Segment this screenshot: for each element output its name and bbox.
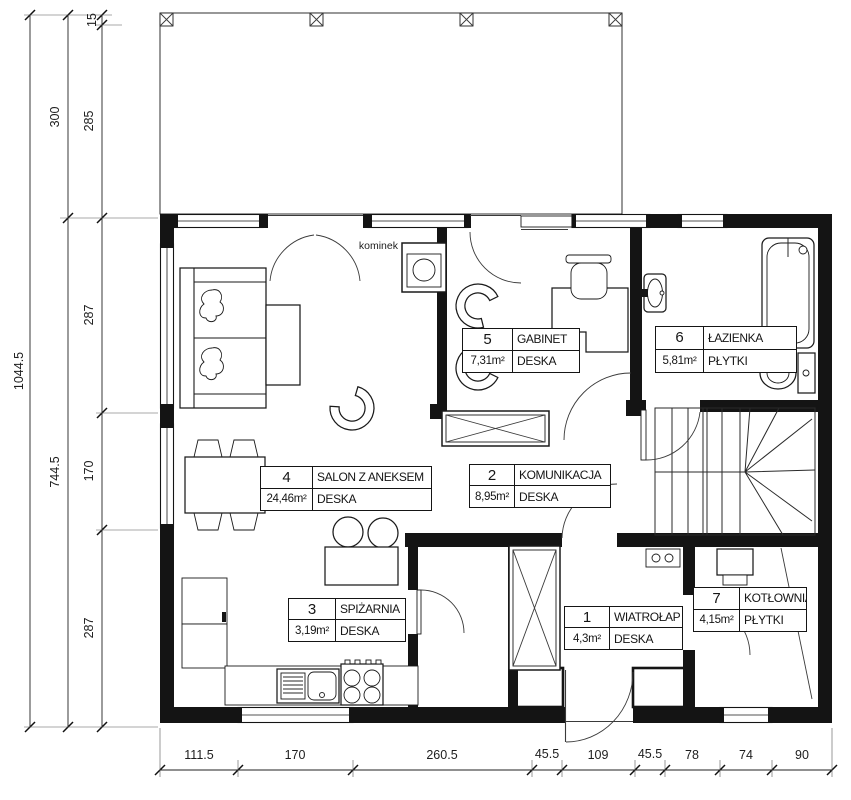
room-label-spizarnia: 3 SPIŻARNIA 3,19m² DESKA	[288, 598, 406, 642]
room-number: 1	[565, 607, 610, 628]
meter-box	[646, 549, 680, 567]
room-label-komunikacja: 2 KOMUNIKACJA 8,95m² DESKA	[469, 464, 611, 508]
dimension-label: 109	[588, 748, 609, 762]
gabinet-door	[564, 373, 631, 440]
washbasin	[640, 274, 666, 312]
room-area: 4,3m²	[565, 628, 610, 649]
window-kotlownia	[720, 708, 772, 723]
kitchen-island	[325, 547, 398, 585]
dining-chair	[194, 440, 222, 457]
armchair	[326, 384, 383, 439]
room-number: 2	[470, 465, 515, 486]
fridge	[182, 578, 227, 624]
kitchen-cabinet	[182, 624, 227, 668]
room-area: 24,46m²	[261, 489, 313, 511]
dimension-label: 287	[82, 618, 96, 639]
stove	[341, 660, 383, 705]
room-name: KOMUNIKACJA	[515, 465, 610, 486]
dimension-label: 285	[82, 111, 96, 132]
room-number: 3	[289, 599, 336, 620]
dining-chair	[230, 513, 258, 530]
dining-chair	[194, 513, 222, 530]
dimension-label: 90	[795, 748, 809, 762]
entry-pier	[633, 668, 691, 707]
room-number: 7	[694, 588, 740, 610]
room-area: 8,95m²	[470, 486, 515, 507]
room-label-gabinet: 5 GABINET 7,31m² DESKA	[462, 328, 580, 373]
room-floor: PŁYTKI	[704, 350, 796, 373]
window-komunikacja	[572, 215, 650, 228]
dimension-label: 45.5	[638, 747, 662, 761]
room-area: 5,81m²	[656, 350, 704, 373]
room-label-lazienka: 6 ŁAZIENKA 5,81m² PŁYTKI	[655, 326, 797, 373]
window-salon-1	[174, 215, 263, 228]
entry-pier	[513, 668, 563, 707]
terrace-column-icon	[460, 13, 473, 26]
floor-plan-page: 4 SALON Z ANEKSEM 24,46m² DESKA 2 KOMUNI…	[0, 0, 851, 800]
room-area: 4,15m²	[694, 610, 740, 632]
fireplace	[402, 243, 446, 292]
room-number: 6	[656, 327, 704, 350]
pantry-door	[417, 590, 464, 634]
terrace-column-icon	[160, 13, 173, 26]
room-name: KOTŁOWNIA	[740, 588, 806, 610]
room-floor: DESKA	[336, 620, 405, 641]
dimension-lines	[24, 10, 837, 777]
dimension-label: 1044.5	[12, 352, 26, 390]
room-label-wiatrolap: 1 WIATROŁAP 4,3m² DESKA	[564, 606, 683, 650]
room-number: 4	[261, 467, 313, 489]
dimension-label: 300	[48, 107, 62, 128]
room-area: 7,31m²	[463, 351, 513, 373]
room-name: GABINET	[513, 329, 579, 351]
gabinet-terrace-door	[470, 230, 568, 284]
sofa	[180, 268, 266, 408]
terrace-column-icon	[310, 13, 323, 26]
office-chair	[566, 255, 611, 299]
wardrobe	[442, 411, 549, 446]
dimension-label: 74	[739, 748, 753, 762]
room-name: SALON Z ANEKSEM	[313, 467, 431, 489]
room-label-salon: 4 SALON Z ANEKSEM 24,46m² DESKA	[260, 466, 432, 511]
dining-table	[185, 457, 265, 513]
room-name: SPIŻARNIA	[336, 599, 405, 620]
dining-chair	[230, 440, 258, 457]
window-left-1	[161, 244, 174, 408]
window-salon-2	[368, 215, 468, 228]
entry-door	[566, 670, 634, 742]
balcony-double-door	[270, 235, 360, 281]
floor-plan-drawing	[0, 0, 851, 800]
window-kitchen	[238, 708, 353, 723]
room-number: 5	[463, 329, 513, 351]
staircase	[655, 408, 815, 535]
hall-closet	[509, 546, 560, 670]
bar-stool	[333, 517, 363, 547]
dimension-label: 45.5	[535, 747, 559, 761]
kitchen-sink	[277, 669, 339, 703]
dining-set	[185, 440, 265, 530]
dimension-label: 111.5	[184, 748, 213, 762]
dimension-label: 260.5	[426, 748, 457, 762]
room-floor: DESKA	[610, 628, 682, 649]
room-label-kotlownia: 7 KOTŁOWNIA 4,15m² PŁYTKI	[693, 587, 807, 632]
dimension-label: 15	[85, 13, 99, 27]
room-floor: DESKA	[515, 486, 610, 507]
terrace	[160, 13, 622, 214]
dimension-label: 78	[685, 748, 699, 762]
dimension-label: 170	[82, 461, 96, 482]
bathroom-door	[641, 410, 700, 460]
bar-stool	[368, 518, 398, 548]
dimension-label: 170	[285, 748, 306, 762]
dimension-label: 744.5	[48, 456, 62, 487]
room-area: 3,19m²	[289, 620, 336, 641]
room-floor: DESKA	[513, 351, 579, 373]
dimension-label: 287	[82, 305, 96, 326]
terrace-column-icon	[609, 13, 622, 26]
boiler	[717, 549, 753, 585]
fireplace-label: kominek	[352, 240, 398, 252]
room-floor: DESKA	[313, 489, 431, 511]
guest-chair	[449, 277, 500, 332]
room-name: ŁAZIENKA	[704, 327, 796, 350]
window-bathroom	[678, 215, 727, 228]
window-left-2	[161, 424, 174, 528]
room-name: WIATROŁAP	[610, 607, 682, 628]
coffee-table	[266, 305, 300, 385]
room-floor: PŁYTKI	[740, 610, 806, 632]
